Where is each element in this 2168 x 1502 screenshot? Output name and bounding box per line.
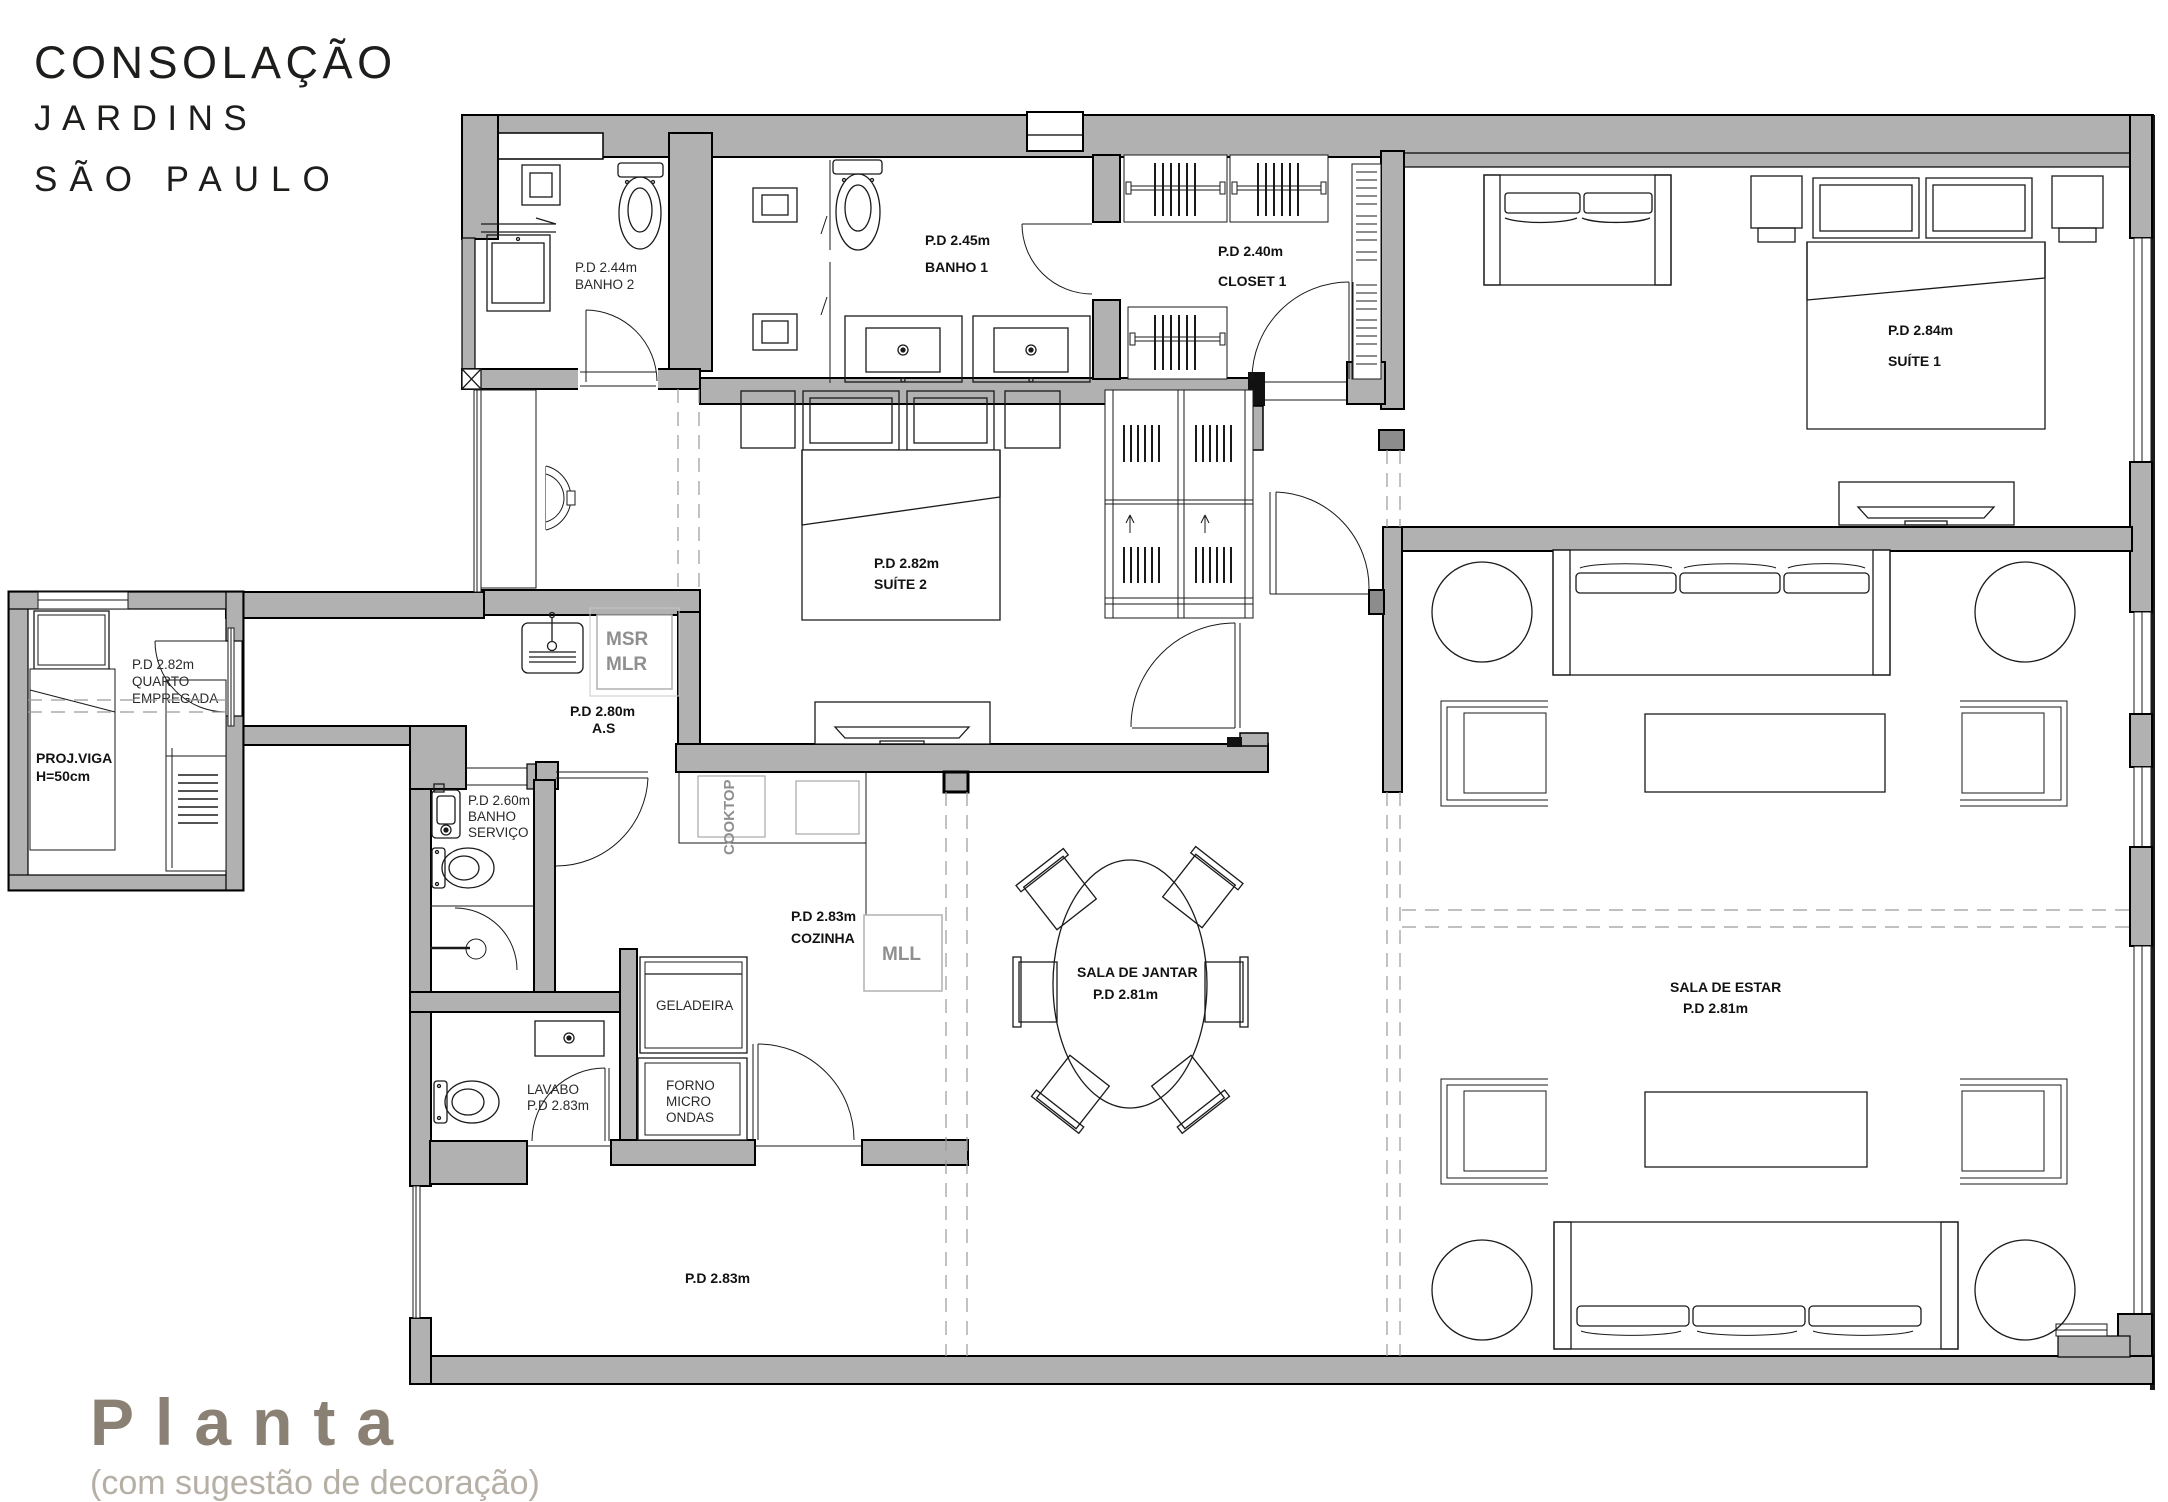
svg-text:P.D 2.83m: P.D 2.83m <box>791 908 856 924</box>
svg-text:GELADEIRA: GELADEIRA <box>656 998 733 1013</box>
svg-text:P.D 2.81m: P.D 2.81m <box>1683 1000 1748 1016</box>
svg-text:P.D 2.83m: P.D 2.83m <box>685 1270 750 1286</box>
svg-text:JARDINS: JARDINS <box>34 99 257 138</box>
svg-text:P.D 2.45m: P.D 2.45m <box>925 232 990 248</box>
svg-text:MSR: MSR <box>606 629 649 650</box>
svg-text:SUÍTE 1: SUÍTE 1 <box>1888 353 1941 369</box>
svg-text:COOKTOP: COOKTOP <box>721 779 738 855</box>
svg-text:P.D 2.80m: P.D 2.80m <box>570 703 635 719</box>
svg-text:PROJ.VIGA: PROJ.VIGA <box>36 750 112 766</box>
svg-text:SUÍTE 2: SUÍTE 2 <box>874 576 927 592</box>
svg-text:SALA DE ESTAR: SALA DE ESTAR <box>1670 979 1781 995</box>
svg-text:CONSOLAÇÃO: CONSOLAÇÃO <box>34 37 397 88</box>
svg-text:P.D 2.82m: P.D 2.82m <box>132 657 194 672</box>
svg-text:(com sugestão de decoração): (com sugestão de decoração) <box>90 1464 540 1502</box>
svg-text:MLR: MLR <box>606 654 647 675</box>
svg-text:MLL: MLL <box>882 944 921 965</box>
svg-text:P.D 2.44m: P.D 2.44m <box>575 260 637 275</box>
svg-text:CLOSET 1: CLOSET 1 <box>1218 273 1287 289</box>
svg-text:P.D 2.81m: P.D 2.81m <box>1093 986 1158 1002</box>
svg-text:FORNO: FORNO <box>666 1078 715 1093</box>
svg-text:ONDAS: ONDAS <box>666 1110 714 1125</box>
svg-text:P.D 2.82m: P.D 2.82m <box>874 555 939 571</box>
svg-text:SALA DE JANTAR: SALA DE JANTAR <box>1077 964 1198 980</box>
svg-text:SÃO PAULO: SÃO PAULO <box>34 160 342 199</box>
svg-text:EMPREGADA: EMPREGADA <box>132 691 218 706</box>
svg-text:P.D 2.40m: P.D 2.40m <box>1218 243 1283 259</box>
svg-text:P.D 2.60m: P.D 2.60m <box>468 793 530 808</box>
svg-text:SERVIÇO: SERVIÇO <box>468 825 529 840</box>
svg-text:Planta: Planta <box>90 1385 414 1459</box>
svg-text:QUARTO: QUARTO <box>132 674 189 689</box>
svg-text:P.D 2.83m: P.D 2.83m <box>527 1098 589 1113</box>
svg-text:P.D 2.84m: P.D 2.84m <box>1888 322 1953 338</box>
svg-text:A.S: A.S <box>592 720 615 736</box>
svg-text:H=50cm: H=50cm <box>36 768 90 784</box>
svg-text:MICRO: MICRO <box>666 1094 711 1109</box>
svg-text:BANHO 1: BANHO 1 <box>925 259 988 275</box>
svg-text:COZINHA: COZINHA <box>791 930 855 946</box>
svg-text:BANHO 2: BANHO 2 <box>575 277 634 292</box>
svg-text:BANHO: BANHO <box>468 809 516 824</box>
